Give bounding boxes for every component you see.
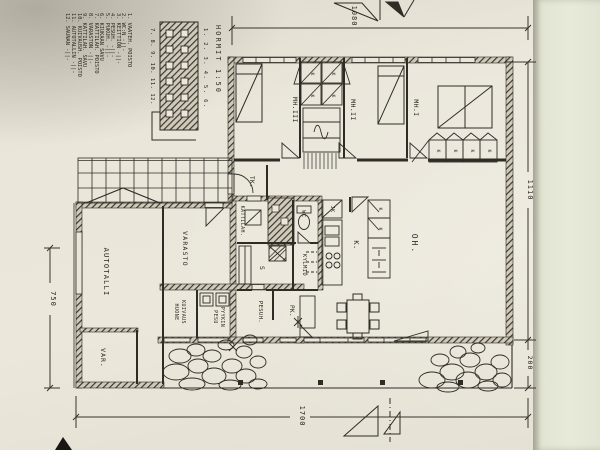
pergola: [74, 158, 232, 388]
beds: [236, 64, 492, 128]
hormit-detail: HORMIT 1:50 1. 2. 3. 4. 5. 6. 7. 8. 9. 1…: [149, 22, 222, 140]
hormit-flue-numbers-right: 1. 2. 3. 4. 5. 6.: [202, 28, 208, 109]
room-label-pyykki-2: PESU: [212, 310, 218, 324]
room-label-kylmio: KYLMIÖ: [301, 254, 308, 276]
dim-bottom: 1700: [298, 406, 306, 427]
room-label-jk: JK: [329, 206, 335, 213]
closet-k: K: [435, 150, 441, 153]
hormit-flue-numbers-left: 7. 8. 9. 10. 11. 12.: [149, 28, 155, 105]
closet-k: K: [452, 150, 458, 153]
deck-posts: [238, 380, 463, 385]
terrace: [160, 335, 512, 392]
closet-k: K: [377, 208, 383, 211]
legend: 1. VAATEH. POISTO 2. WC:N -||- 3. KEITTI…: [64, 13, 132, 77]
legend-item: 3. KEITTIÖN -||-: [115, 13, 122, 64]
room-label-keittio: K.: [352, 240, 360, 249]
room-label-mh2: MH.II: [349, 99, 357, 121]
north-arrow-icon: [344, 398, 400, 442]
room-label-kattilah: KATTILAH.: [239, 206, 245, 237]
room-label-kuivaus-1: KUIVAUS: [180, 300, 186, 324]
room-label-pesuh: PESUH.: [257, 301, 263, 323]
room-label-pyykki-1: PYYKIN: [219, 307, 225, 327]
dim-left: 750: [49, 291, 57, 307]
stones-right: [419, 343, 511, 392]
room-label-tk: TK.: [248, 176, 255, 188]
room-label-mh3: MH.III: [291, 97, 299, 123]
room-label-oh: OH.: [410, 234, 419, 254]
drain-mark: [229, 316, 302, 351]
room-label-mh1: MH.I: [412, 99, 420, 116]
dining-table: [337, 294, 379, 339]
legend-item: 12. SAUNAN -||-: [64, 13, 70, 61]
closet-k: K: [330, 73, 336, 76]
room-label-wc: WC: [300, 210, 306, 217]
closet-core: [294, 62, 350, 169]
room-labels: AUTOTALLI VARASTO VAR. KUIVAUS HUONE PYY…: [99, 97, 420, 368]
room-label-pk: PK.: [288, 305, 295, 317]
closet-k: K: [330, 95, 336, 98]
north-arrow-icon: [334, 0, 414, 21]
room-label-kuivaus-2: HUONE: [173, 303, 179, 320]
closet-k: K: [309, 95, 315, 98]
closet-k: K: [469, 150, 475, 153]
dim-right2: 200: [526, 356, 534, 371]
room-label-var: VAR.: [99, 348, 107, 368]
closet-k: K: [486, 150, 492, 153]
dim-right: 1110: [526, 180, 534, 201]
closet-k: K: [309, 73, 315, 76]
closet-k: K: [377, 228, 383, 231]
room-label-sauna: S: [258, 266, 266, 270]
floor-plan-photo: 1. VAATEH. POISTO 2. WC:N -||- 3. KEITTI…: [0, 0, 600, 450]
dim-top: 1080: [350, 6, 358, 27]
room-label-varasto: VARASTO: [181, 231, 189, 267]
floor-plan-drawing: 1. VAATEH. POISTO 2. WC:N -||- 3. KEITTI…: [0, 0, 600, 450]
room-label-autotalli: AUTOTALLI: [102, 248, 110, 297]
chimney: [268, 198, 294, 245]
hormit-title: HORMIT 1:50: [214, 25, 222, 94]
